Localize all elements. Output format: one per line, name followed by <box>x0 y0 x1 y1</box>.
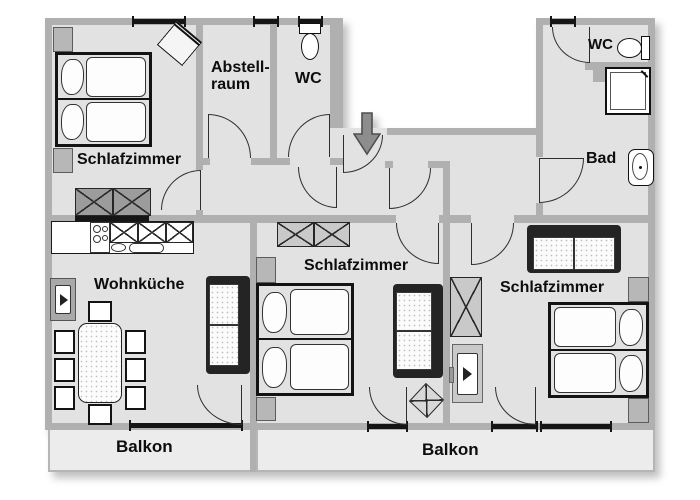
chair <box>54 358 75 382</box>
chair <box>88 404 112 425</box>
wardrobe-mid-cell <box>314 222 350 247</box>
kitchen-cabinet <box>166 222 193 243</box>
chair <box>125 358 146 382</box>
sink-icon <box>628 149 654 186</box>
dining-table <box>78 323 122 403</box>
bed-double-right <box>548 302 649 398</box>
wall-hall-north-a <box>196 158 210 165</box>
room-label-schlafzimmer-left: Schlafzimmer <box>77 152 181 169</box>
wall-wc-east <box>330 18 343 128</box>
room-label-wc-bath: WC <box>588 37 613 53</box>
stove-icon <box>90 222 110 253</box>
wall-abstellraum-east <box>270 18 277 158</box>
sofa-bedroom-mid <box>393 284 443 378</box>
window-wc-bath <box>551 19 575 24</box>
wall-shower-stub <box>593 66 605 82</box>
nightstand <box>256 397 276 421</box>
chair <box>88 301 112 322</box>
balcony-door-right-threshold <box>492 424 537 429</box>
balcony-door-mid-threshold <box>368 424 407 429</box>
mattress <box>290 289 349 335</box>
bed-double-mid <box>256 283 354 396</box>
kitchen-sink <box>129 243 164 253</box>
room-label-schlafzimmer-mid: Schlafzimmer <box>304 258 408 275</box>
wall-corridor-south-a <box>385 161 393 168</box>
chair <box>125 386 146 410</box>
room-label-bad: Bad <box>586 151 616 168</box>
nightstand <box>53 27 73 52</box>
wall-mid-north-c <box>514 215 655 223</box>
floor-plan: Schlafzimmer Abstell- raum WC WC Bad Woh… <box>0 0 700 500</box>
pillow <box>61 104 84 140</box>
kitchen-sink-basin <box>111 243 126 252</box>
wardrobe-left-cell <box>113 188 151 216</box>
room-label-schlafzimmer-right: Schlafzimmer <box>500 280 604 297</box>
toilet-bowl <box>617 38 642 58</box>
wall-hall-north-c <box>330 158 343 165</box>
pillow <box>619 309 643 346</box>
wardrobe-mid-cell <box>277 222 314 247</box>
room-label-balkon-right: Balkon <box>422 441 479 459</box>
wardrobe-left-cell <box>75 188 113 216</box>
mattress <box>554 353 616 393</box>
tv-icon <box>50 278 76 321</box>
wall-balcony-separator <box>250 430 256 472</box>
pillow <box>262 292 287 333</box>
room-label-wohnkueche: Wohnküche <box>94 277 184 294</box>
tv-icon <box>452 344 483 403</box>
room-label-abstellraum: Abstell- raum <box>211 60 270 94</box>
shower-icon <box>605 67 651 115</box>
mattress <box>86 57 146 97</box>
balcony-door-left-threshold <box>130 423 242 428</box>
window-bedroom-right-south <box>541 424 611 429</box>
wall-mid-right-divider <box>443 161 450 423</box>
wall-corridor-north <box>387 128 536 135</box>
entrance-arrow-icon <box>353 112 381 156</box>
sofa-wohnkueche <box>206 276 250 374</box>
pillow <box>61 59 84 95</box>
kitchen-cabinet <box>138 222 166 243</box>
chair <box>54 330 75 354</box>
kitchen-cabinet <box>110 222 138 243</box>
wall-bedroom-left-east-lower <box>196 210 203 223</box>
window-abstellraum <box>254 19 278 24</box>
room-label-wc-top: WC <box>295 71 322 88</box>
room-label-balkon-left: Balkon <box>116 438 173 456</box>
toilet-bowl <box>301 33 319 60</box>
nightstand <box>256 257 276 283</box>
pillow <box>262 347 287 388</box>
floor-plan-image: Schlafzimmer Abstell- raum WC WC Bad Woh… <box>0 0 700 500</box>
mattress <box>86 102 146 142</box>
wall-bad-west-upper <box>536 18 543 157</box>
pillow <box>619 355 643 392</box>
mattress <box>554 307 616 347</box>
wall-hall-north-b <box>251 158 290 165</box>
wardrobe-right <box>450 277 482 337</box>
chair <box>125 330 146 354</box>
mattress <box>290 344 349 390</box>
bed-double-left <box>55 52 152 147</box>
toilet-icon <box>641 36 650 60</box>
nightstand <box>628 277 649 302</box>
chair <box>54 386 75 410</box>
nightstand <box>628 398 649 423</box>
nightstand <box>53 148 73 173</box>
sofa-bedroom-right <box>527 225 621 273</box>
